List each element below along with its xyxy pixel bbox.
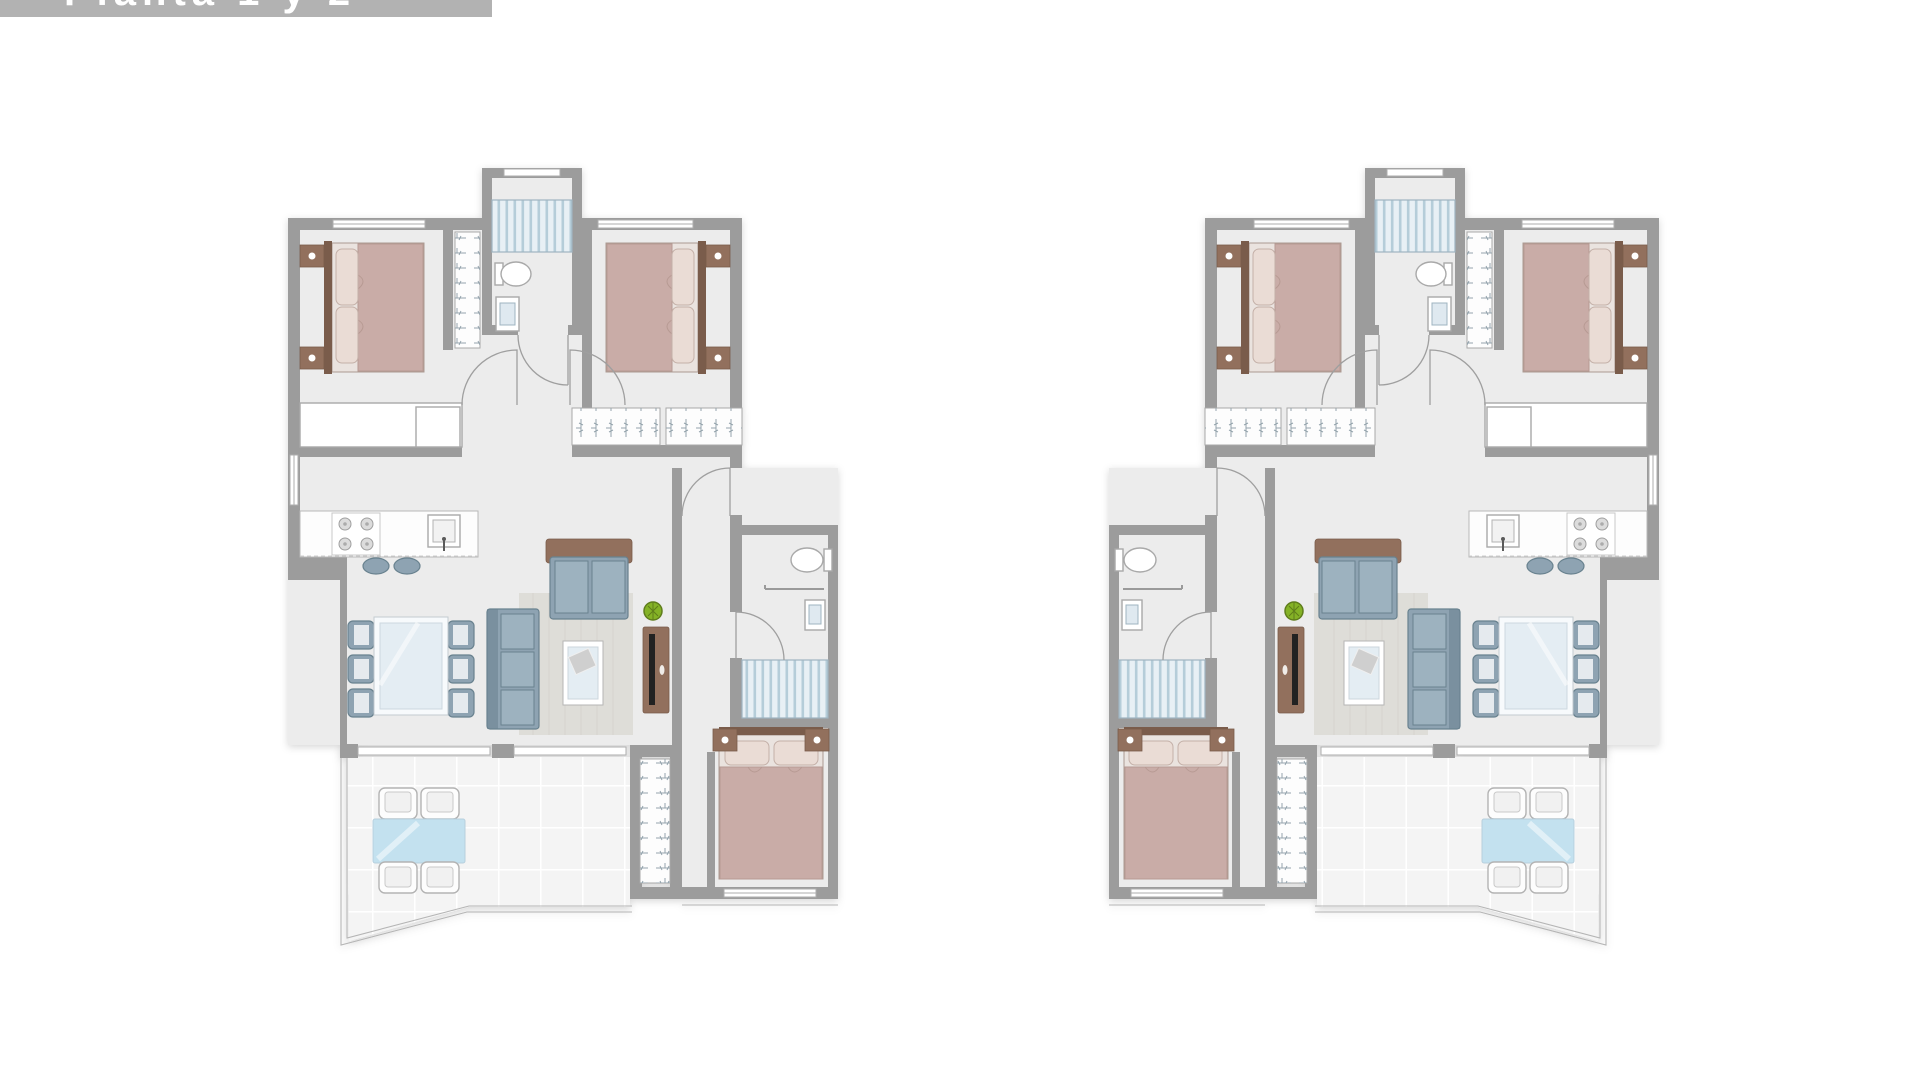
floorplans-canvas [0,0,1920,1080]
floor-plan-right [1109,168,1659,945]
floor-plan-left [288,168,838,945]
